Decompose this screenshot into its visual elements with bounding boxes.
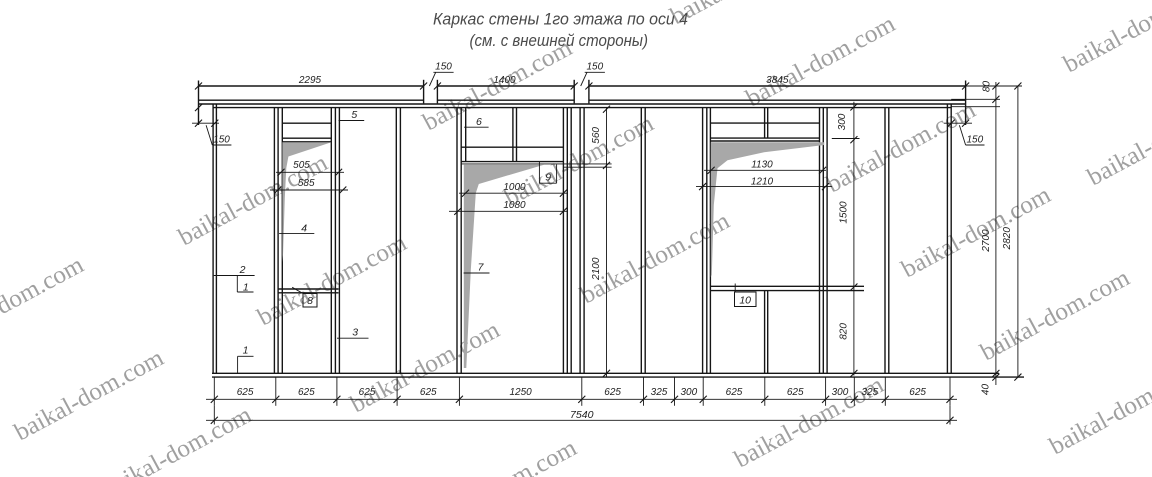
svg-text:560: 560 [591, 127, 602, 144]
svg-text:8: 8 [307, 295, 313, 307]
svg-text:baikal-dom.com: baikal-dom.com [346, 316, 505, 418]
svg-text:6: 6 [476, 116, 482, 128]
svg-text:(см. с внешней стороны): (см. с внешней стороны) [470, 31, 649, 50]
svg-text:150: 150 [966, 134, 983, 145]
svg-text:Каркас стены 1го этажа по оси: Каркас стены 1го этажа по оси 4 [433, 9, 688, 28]
svg-text:3: 3 [352, 327, 358, 339]
svg-text:baikal-dom.com: baikal-dom.com [10, 344, 169, 446]
svg-text:150: 150 [213, 134, 230, 145]
svg-text:baikal-dom.com: baikal-dom.com [1045, 358, 1152, 460]
svg-text:625: 625 [359, 387, 376, 398]
svg-text:2: 2 [239, 264, 246, 276]
svg-text:1: 1 [243, 281, 249, 293]
svg-text:300: 300 [837, 113, 848, 130]
svg-text:baikal-dom.com: baikal-dom.com [0, 251, 89, 353]
svg-text:1500: 1500 [839, 201, 850, 224]
svg-text:625: 625 [298, 387, 315, 398]
svg-text:150: 150 [435, 62, 452, 73]
svg-text:9: 9 [545, 172, 551, 184]
svg-text:625: 625 [604, 387, 621, 398]
svg-text:1250: 1250 [509, 387, 532, 398]
svg-text:1210: 1210 [751, 176, 774, 187]
svg-text:585: 585 [298, 178, 315, 189]
svg-text:325: 325 [651, 387, 668, 398]
svg-text:baikal-dom.com: baikal-dom.com [742, 10, 901, 112]
svg-text:10: 10 [739, 295, 751, 307]
svg-text:baikal-dom.com: baikal-dom.com [98, 401, 257, 477]
svg-text:7: 7 [478, 262, 485, 274]
svg-text:2820: 2820 [1002, 227, 1013, 251]
svg-text:625: 625 [237, 387, 254, 398]
svg-text:40: 40 [981, 384, 992, 396]
svg-text:baikal-dom.com: baikal-dom.com [976, 264, 1135, 366]
svg-text:505: 505 [293, 160, 310, 171]
svg-text:1400: 1400 [493, 75, 516, 86]
svg-text:625: 625 [787, 387, 804, 398]
svg-text:625: 625 [909, 387, 926, 398]
svg-text:baikal-dom.com: baikal-dom.com [1083, 89, 1152, 191]
svg-text:baikal-dom.com: baikal-dom.com [666, 0, 825, 30]
svg-text:150: 150 [586, 62, 603, 73]
svg-text:2295: 2295 [298, 75, 322, 86]
svg-text:1130: 1130 [751, 160, 773, 171]
svg-text:4: 4 [301, 223, 307, 235]
svg-text:5: 5 [351, 109, 357, 121]
svg-text:1080: 1080 [503, 200, 526, 211]
svg-text:baikal-dom.com: baikal-dom.com [423, 434, 582, 477]
svg-text:2700: 2700 [981, 229, 992, 253]
svg-text:baikal-dom.com: baikal-dom.com [822, 96, 981, 198]
svg-text:baikal-dom.com: baikal-dom.com [253, 229, 412, 331]
svg-text:1: 1 [243, 345, 249, 357]
svg-text:7540: 7540 [570, 410, 594, 421]
svg-text:820: 820 [838, 323, 849, 340]
svg-text:baikal-dom.com: baikal-dom.com [500, 110, 659, 212]
svg-text:1000: 1000 [503, 182, 526, 193]
svg-text:325: 325 [861, 387, 878, 398]
svg-text:300: 300 [832, 387, 849, 398]
svg-text:300: 300 [681, 387, 698, 398]
svg-text:625: 625 [420, 387, 437, 398]
svg-text:3845: 3845 [766, 75, 789, 86]
svg-text:2100: 2100 [591, 257, 602, 281]
svg-text:baikal-dom.com: baikal-dom.com [1059, 0, 1152, 78]
svg-text:625: 625 [726, 387, 743, 398]
svg-text:baikal-dom.com: baikal-dom.com [897, 181, 1056, 283]
